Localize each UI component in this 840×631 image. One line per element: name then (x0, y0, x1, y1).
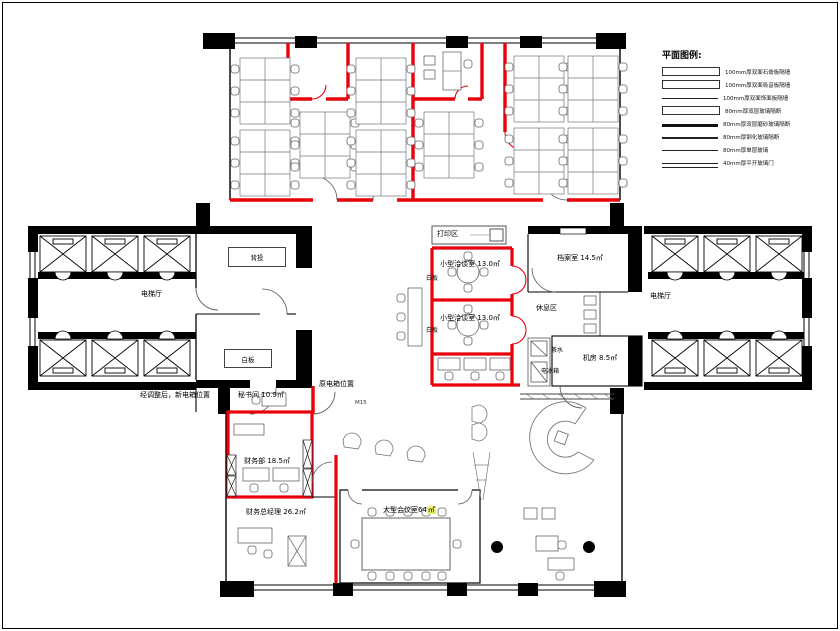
legend-rows: 100mm厚双面石膏板隔墙100mm厚双面吸音板隔墙100mm厚双面饰面板隔墙8… (662, 67, 827, 167)
legend-item: 80mm厚钢化玻璃隔断 (662, 132, 827, 141)
elevator-door-notches (55, 272, 175, 339)
reception-area (491, 394, 614, 580)
finance-room (227, 412, 332, 497)
round-table-2 (448, 305, 488, 345)
column-dot (583, 541, 595, 553)
door-tag-m15: M15 (355, 401, 367, 407)
legend-item-label: 80mm厚双层磨砂玻璃隔断 (723, 120, 790, 128)
label-whiteboard-2: 白板 (426, 328, 438, 334)
note-old-electric-box: 原电箱位置 (319, 381, 354, 388)
legend-item: 80mm厚双层玻璃隔断 (662, 106, 827, 115)
label-meeting-2: 小型洽谈室 13.0㎡ (440, 315, 500, 322)
legend-item-label: 100mm厚双面吸音板隔墙 (725, 81, 790, 89)
legend-item: 100mm厚双面饰面板隔墙 (662, 93, 827, 102)
legend-item-label: 40mm厚平开玻璃门 (723, 159, 774, 167)
legend-swatch-rect-outline (662, 106, 720, 115)
label-big-meeting: 大型会议室64㎡ (383, 507, 436, 514)
label-fridge: 电冰箱 (541, 369, 559, 375)
label-tea-water: 茶水 (551, 348, 563, 354)
label-finance-director: 财务总经理 26.2㎡ (246, 509, 306, 516)
legend-item-label: 100mm厚双面饰面板隔墙 (723, 94, 788, 102)
corridor-high-table (397, 288, 422, 346)
legend-swatch-thin-line (662, 146, 718, 154)
big-meeting-room (340, 488, 480, 583)
rear-projection-box: 背投 (228, 247, 286, 267)
tea-counter (528, 338, 550, 386)
lounge-seats (342, 405, 490, 500)
reception-furniture (524, 508, 574, 580)
column-dot (491, 541, 503, 553)
legend-item-label: 80mm厚双层玻璃隔断 (725, 107, 781, 115)
legend-swatch-rect-outline (662, 67, 720, 76)
left-wing (28, 226, 196, 390)
legend-title: 平面图例: (662, 48, 827, 61)
legend-swatch-rect-outline (662, 80, 720, 89)
label-meeting-1: 小型洽谈室 13.0㎡ (440, 261, 500, 268)
label-finance: 财务部 18.5㎡ (244, 458, 290, 465)
legend-item: 40mm厚平开玻璃门 (662, 158, 827, 167)
legend: 平面图例: 100mm厚双面石膏板隔墙100mm厚双面吸音板隔墙100mm厚双面… (662, 48, 827, 171)
legend-swatch-medium-line (662, 133, 718, 141)
legend-item: 100mm厚双面石膏板隔墙 (662, 67, 827, 76)
label-elevator-hall-right: 电梯厅 (650, 293, 671, 300)
legend-swatch-thick-line (662, 120, 718, 128)
right-wing (644, 226, 812, 390)
label-print-area: 打印区 (437, 231, 458, 238)
legend-item: 80mm厚单层玻璃 (662, 145, 827, 154)
label-machine-room: 机房 8.5㎡ (583, 355, 617, 362)
note-new-electric-box: 经调整后，新电箱位置 (140, 392, 210, 399)
label-archive: 档案室 14.5㎡ (557, 255, 603, 262)
label-secretary: 秘书间 10.9㎡ (238, 392, 284, 399)
label-rest-area: 休息区 (536, 305, 557, 312)
legend-item: 100mm厚双面吸音板隔墙 (662, 80, 827, 89)
legend-item: 80mm厚双层磨砂玻璃隔断 (662, 119, 827, 128)
top-center-office (424, 52, 472, 90)
area-highlight: ㎡ (427, 506, 436, 514)
rest-area (584, 292, 600, 336)
legend-item-label: 80mm厚钢化玻璃隔断 (723, 133, 779, 141)
workstations-below-meeting (438, 358, 510, 380)
legend-item-label: 100mm厚双面石膏板隔墙 (725, 68, 790, 76)
whiteboard-box: 白板 (224, 349, 272, 368)
new-electric-box-wall (313, 386, 335, 414)
floor-plan: 打印区 小型洽谈室 13.0㎡ 白板 小型洽谈室 13.0㎡ 白板 档案室 14… (0, 0, 840, 631)
legend-swatch-line (662, 94, 718, 102)
legend-item-label: 80mm厚单层玻璃 (723, 146, 768, 154)
small-meeting-room-doors (512, 266, 526, 344)
legend-swatch-double-line (662, 159, 718, 167)
round-table-1 (448, 252, 488, 292)
label-whiteboard-1: 白板 (426, 276, 438, 282)
label-elevator-hall-left: 电梯厅 (141, 291, 162, 298)
machine-room (552, 336, 642, 408)
